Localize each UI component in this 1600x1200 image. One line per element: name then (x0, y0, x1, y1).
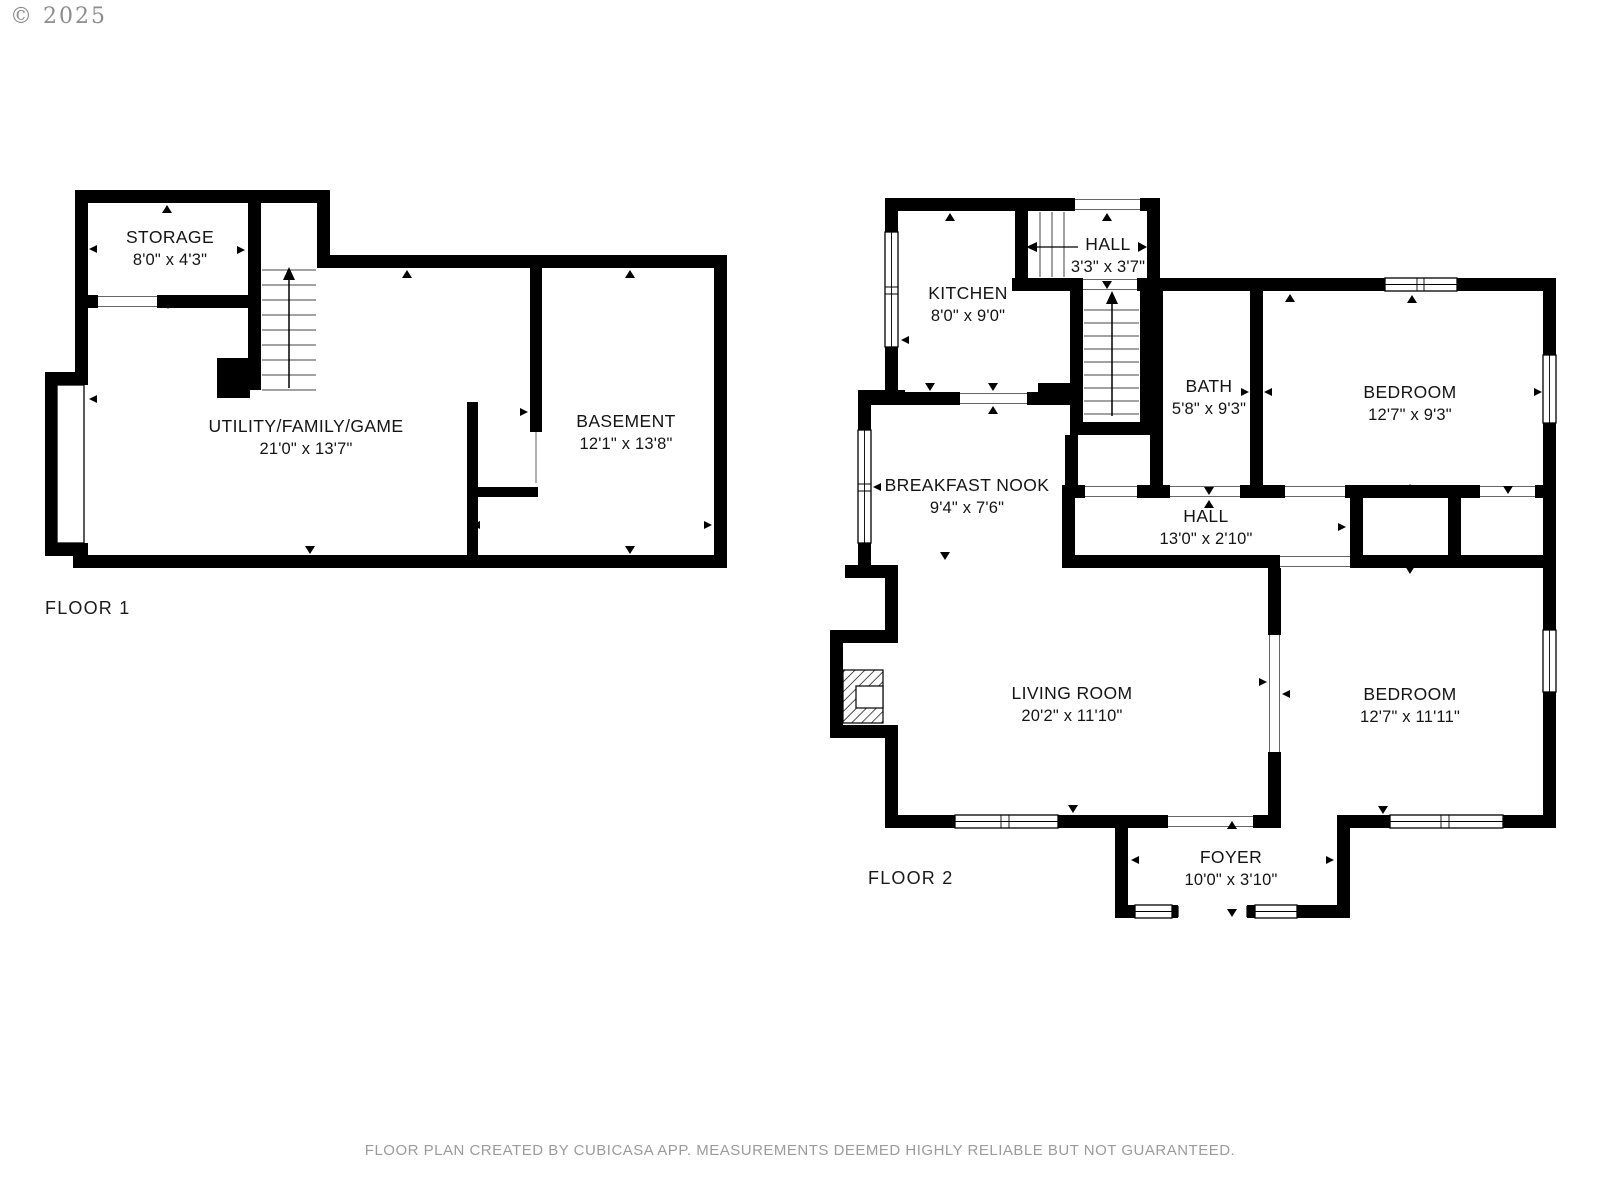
footer-disclaimer: FLOOR PLAN CREATED BY CUBICASA APP. MEAS… (0, 1142, 1600, 1159)
room-dimensions: 20'2" x 11'10" (1011, 705, 1132, 728)
room-label-living-room: LIVING ROOM 20'2" x 11'10" (1011, 682, 1132, 728)
room-dimensions: 13'0" x 2'10" (1159, 528, 1252, 551)
room-name: KITCHEN (928, 282, 1008, 305)
room-dimensions: 12'7" x 9'3" (1363, 404, 1456, 427)
room-dimensions: 8'0" x 4'3" (126, 249, 214, 272)
room-dimensions: 8'0" x 9'0" (928, 305, 1008, 328)
room-label-kitchen: KITCHEN 8'0" x 9'0" (928, 282, 1008, 328)
floor2-windows (858, 232, 1556, 918)
copyright-text: © 2025 (10, 4, 107, 29)
floor1-stairs-icon (262, 267, 316, 390)
room-name: HALL (1071, 233, 1145, 256)
room-label-bedroom-top: BEDROOM 12'7" x 9'3" (1363, 381, 1456, 427)
room-label-basement: BASEMENT 12'1" x 13'8" (576, 410, 675, 456)
floor1-label: FLOOR 1 (45, 598, 130, 619)
room-name: BASEMENT (576, 410, 675, 433)
room-name: BEDROOM (1360, 683, 1460, 706)
room-label-bedroom-bottom: BEDROOM 12'7" x 11'11" (1360, 683, 1460, 729)
room-label-hall-main: HALL 13'0" x 2'10" (1159, 505, 1252, 551)
floorplan-drawing (0, 0, 1600, 1200)
room-name: FOYER (1184, 846, 1277, 869)
room-dimensions: 12'7" x 11'11" (1360, 706, 1460, 729)
room-dimensions: 9'4" x 7'6" (885, 497, 1050, 520)
room-dimensions: 5'8" x 9'3" (1172, 398, 1246, 421)
floor2-label: FLOOR 2 (868, 868, 953, 889)
room-dimensions: 10'0" x 3'10" (1184, 869, 1277, 892)
room-label-utility: UTILITY/FAMILY/GAME 21'0" x 13'7" (209, 415, 404, 461)
room-label-foyer: FOYER 10'0" x 3'10" (1184, 846, 1277, 892)
room-name: BREAKFAST NOOK (885, 474, 1050, 497)
support-column (217, 358, 250, 398)
room-label-storage: STORAGE 8'0" x 4'3" (126, 226, 214, 272)
room-name: STORAGE (126, 226, 214, 249)
room-label-hall-upper: HALL 3'3" x 3'7" (1071, 233, 1145, 279)
room-name: LIVING ROOM (1011, 682, 1132, 705)
fireplace-icon (843, 670, 883, 723)
room-name: BEDROOM (1363, 381, 1456, 404)
room-name: HALL (1159, 505, 1252, 528)
floor2-stairs-icon (1084, 291, 1139, 416)
room-dimensions: 3'3" x 3'7" (1071, 256, 1145, 279)
room-label-breakfast-nook: BREAKFAST NOOK 9'4" x 7'6" (885, 474, 1050, 520)
room-name: BATH (1172, 375, 1246, 398)
room-dimensions: 12'1" x 13'8" (576, 433, 675, 456)
bay-window (57, 385, 84, 543)
room-name: UTILITY/FAMILY/GAME (209, 415, 404, 438)
room-dimensions: 21'0" x 13'7" (209, 438, 404, 461)
room-label-bath: BATH 5'8" x 9'3" (1172, 375, 1246, 421)
